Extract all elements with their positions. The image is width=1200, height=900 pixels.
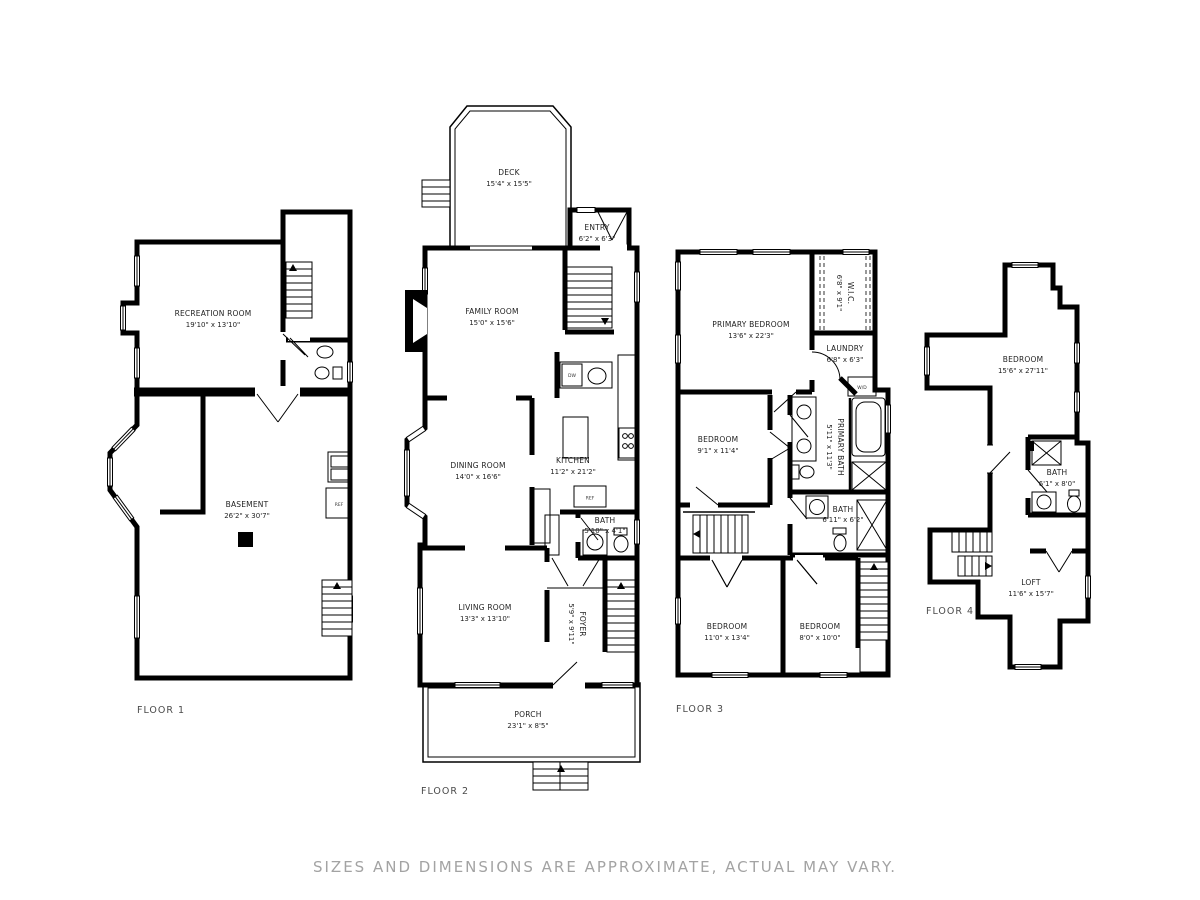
- floor-1-label: FLOOR 1: [137, 705, 185, 716]
- floor-3-label: FLOOR 3: [676, 704, 724, 715]
- svg-text:BEDROOM: BEDROOM: [698, 435, 739, 444]
- stairs-icon: [286, 262, 312, 318]
- svg-text:BATH: BATH: [833, 505, 854, 514]
- svg-text:ENTRY: ENTRY: [584, 223, 609, 232]
- floor-plan-image: REF RECREATION ROOM 19'10" x 13'10" BASE…: [0, 0, 1200, 900]
- porch-outline: [423, 683, 640, 790]
- svg-text:11'2" x 21'2": 11'2" x 21'2": [550, 468, 596, 476]
- svg-text:26'2" x 30'7": 26'2" x 30'7": [224, 512, 270, 520]
- svg-text:5'10" x 4'1": 5'10" x 4'1": [584, 527, 625, 535]
- room-label-deck: DECK 15'4" x 15'5": [486, 168, 532, 188]
- svg-text:15'4" x 15'5": 15'4" x 15'5": [486, 180, 532, 188]
- svg-text:W.I.C.: W.I.C.: [846, 282, 855, 304]
- svg-text:RECREATION ROOM: RECREATION ROOM: [175, 309, 252, 318]
- support-post: [238, 532, 253, 547]
- svg-text:5'11" x 11'3": 5'11" x 11'3": [825, 424, 833, 470]
- svg-text:LIVING ROOM: LIVING ROOM: [458, 603, 511, 612]
- svg-text:DECK: DECK: [498, 168, 520, 177]
- stairs-icon: [422, 180, 450, 207]
- appliance-label: REF: [586, 496, 595, 502]
- svg-text:PRIMARY BEDROOM: PRIMARY BEDROOM: [712, 320, 789, 329]
- floor-1-plan: REF RECREATION ROOM 19'10" x 13'10" BASE…: [108, 212, 353, 716]
- svg-text:11'0" x 13'4": 11'0" x 13'4": [704, 634, 750, 642]
- svg-text:5'9" x 9'11": 5'9" x 9'11": [567, 603, 575, 644]
- svg-text:15'0" x 15'6": 15'0" x 15'6": [469, 319, 515, 327]
- svg-text:19'10" x 13'10": 19'10" x 13'10": [186, 321, 241, 329]
- svg-text:9'1" x 11'4": 9'1" x 11'4": [697, 447, 738, 455]
- svg-text:DINING ROOM: DINING ROOM: [450, 461, 505, 470]
- floor-4-label: FLOOR 4: [926, 606, 974, 617]
- svg-text:13'3" x 13'10": 13'3" x 13'10": [460, 615, 510, 623]
- floor-3-plan: W/D: [676, 250, 891, 716]
- svg-text:6'11" x 6'2": 6'11" x 6'2": [822, 516, 863, 524]
- svg-text:PORCH: PORCH: [514, 710, 541, 719]
- svg-text:6'1" x 8'0": 6'1" x 8'0": [1039, 480, 1076, 488]
- svg-text:BATH: BATH: [595, 516, 616, 525]
- svg-text:BEDROOM: BEDROOM: [800, 622, 841, 631]
- stairs-icon: [322, 580, 352, 636]
- svg-text:8'0" x 10'0": 8'0" x 10'0": [799, 634, 840, 642]
- stairs-icon: [567, 267, 612, 328]
- stairs-icon: [607, 580, 635, 652]
- svg-text:KITCHEN: KITCHEN: [556, 456, 590, 465]
- svg-text:BASEMENT: BASEMENT: [226, 500, 269, 509]
- svg-text:11'6" x 15'7": 11'6" x 15'7": [1008, 590, 1054, 598]
- svg-text:13'6" x 22'3": 13'6" x 22'3": [728, 332, 774, 340]
- floor-2-plan: DW REF DECK 15'4" x 15'5" ENTRY 6'2" x 6…: [405, 106, 641, 797]
- svg-text:PRIMARY BATH: PRIMARY BATH: [836, 418, 845, 476]
- floor-2-label: FLOOR 2: [421, 786, 469, 797]
- appliance-label: DW: [568, 373, 576, 379]
- svg-text:BATH: BATH: [1047, 468, 1068, 477]
- appliance-label: W/D: [857, 385, 867, 391]
- svg-text:LAUNDRY: LAUNDRY: [826, 344, 863, 353]
- fireplace-icon: [405, 290, 427, 352]
- svg-text:FAMILY ROOM: FAMILY ROOM: [465, 307, 518, 316]
- deck-outline: [450, 106, 571, 248]
- svg-text:6'8" x 6'3": 6'8" x 6'3": [827, 356, 864, 364]
- svg-text:15'6" x 27'11": 15'6" x 27'11": [998, 367, 1048, 375]
- stairs-icon: [683, 512, 755, 553]
- svg-text:6'2" x 6'3": 6'2" x 6'3": [579, 235, 616, 243]
- svg-text:FOYER: FOYER: [578, 611, 587, 636]
- disclaimer-text: SIZES AND DIMENSIONS ARE APPROXIMATE, AC…: [313, 858, 897, 876]
- svg-text:BEDROOM: BEDROOM: [707, 622, 748, 631]
- floor-4-plan: BEDROOM 15'6" x 27'11" BATH 6'1" x 8'0" …: [925, 263, 1091, 670]
- appliance-label: REF: [335, 502, 344, 508]
- svg-text:BEDROOM: BEDROOM: [1003, 355, 1044, 364]
- svg-text:23'1" x 8'5": 23'1" x 8'5": [507, 722, 548, 730]
- svg-text:14'0" x 16'6": 14'0" x 16'6": [455, 473, 501, 481]
- svg-text:6'8" x 9'1": 6'8" x 9'1": [835, 275, 843, 312]
- room-label-porch: PORCH 23'1" x 8'5": [507, 710, 548, 730]
- svg-text:LOFT: LOFT: [1021, 578, 1041, 587]
